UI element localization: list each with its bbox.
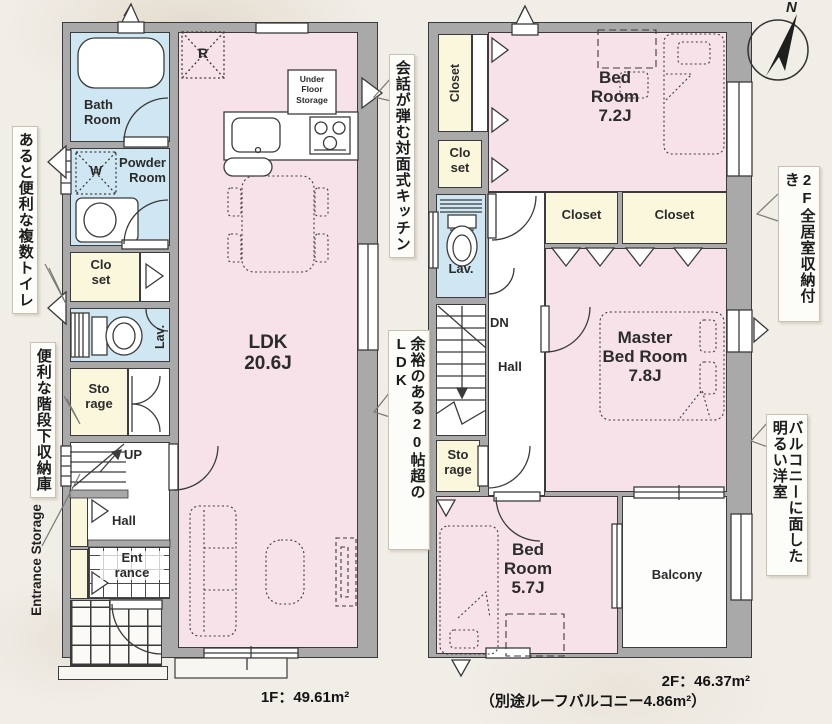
- closet-tall-door: [472, 34, 488, 132]
- entrance-closet-2: [70, 549, 88, 599]
- callout-ldk: 余裕のある20帖超のLDK: [388, 330, 430, 550]
- label-entrance: Ent rance: [100, 551, 164, 580]
- porch-step: [58, 666, 168, 680]
- callout-multi-toilet: あると便利な複数トイレ: [12, 126, 38, 314]
- compass-north-label: N: [786, 0, 808, 17]
- floor2-area-note: （別途ルーフバルコニー4.86m²）: [418, 694, 768, 711]
- label-bedroom2: Bed Room 5.7J: [496, 540, 560, 597]
- callout-storage-2f: 2F全居室収納付き: [778, 166, 820, 322]
- label-up: UP: [124, 448, 160, 463]
- label-bath: Bath Room: [84, 98, 164, 127]
- label-dn: DN: [490, 316, 520, 331]
- label-bedroom1: Bed Room 7.2J: [580, 68, 650, 125]
- room-stairs-2f: [436, 304, 486, 436]
- label-fridge: R: [182, 46, 224, 62]
- entrance-porch: [70, 600, 162, 666]
- label-lav-2f: Lav.: [440, 262, 482, 277]
- label-closet-m2: Closet: [622, 208, 727, 223]
- terrace-step-icon: [175, 658, 287, 678]
- label-closet-m1: Closet: [545, 208, 618, 223]
- label-closet-small-2f: Clo set: [438, 146, 482, 175]
- property-floorplan: N Bath Room W Powder Room R Under Floor …: [0, 0, 832, 724]
- label-closet-1f: Clo set: [70, 258, 132, 287]
- label-master-bedroom: Master Bed Room 7.8J: [595, 328, 695, 385]
- label-storage-1f: Sto rage: [72, 382, 126, 411]
- floor1-area-label: 1F：49.61m²: [235, 690, 375, 707]
- storage-1f-door: [128, 368, 170, 436]
- label-powder: Powder Room: [104, 156, 166, 185]
- floor2-area-label: 2F：46.37m²: [618, 674, 750, 691]
- entrance-closet-1: [70, 497, 88, 547]
- room-lav-2f: [436, 194, 486, 298]
- label-hall-1f: Hall: [112, 514, 156, 529]
- room-hall-2f: [488, 192, 545, 496]
- label-balcony: Balcony: [644, 568, 710, 583]
- label-ldk: LDK 20.6J: [228, 332, 308, 375]
- label-hall-2f: Hall: [498, 360, 538, 375]
- label-storage-2f: Sto rage: [436, 448, 480, 477]
- closet-1f-door: [140, 252, 170, 302]
- label-closet-tall-2f: Closet: [448, 38, 462, 128]
- callout-kitchen: 会話が弾む対面式キッチン: [389, 54, 415, 258]
- label-under-floor-storage: Under Floor Storage: [288, 74, 336, 105]
- bottom-wall-mark-2f: [452, 660, 470, 676]
- callout-entrance-storage: Entrance Storage: [29, 485, 47, 635]
- master-wall-arrow: [754, 318, 768, 342]
- compass-icon: [740, 0, 824, 90]
- callout-under-stair: 便利な階段下収納庫: [30, 342, 56, 498]
- callout-balcony-room: バルコニーに面した明るい洋室: [766, 414, 808, 576]
- label-lav-1f: Lav.: [153, 315, 167, 359]
